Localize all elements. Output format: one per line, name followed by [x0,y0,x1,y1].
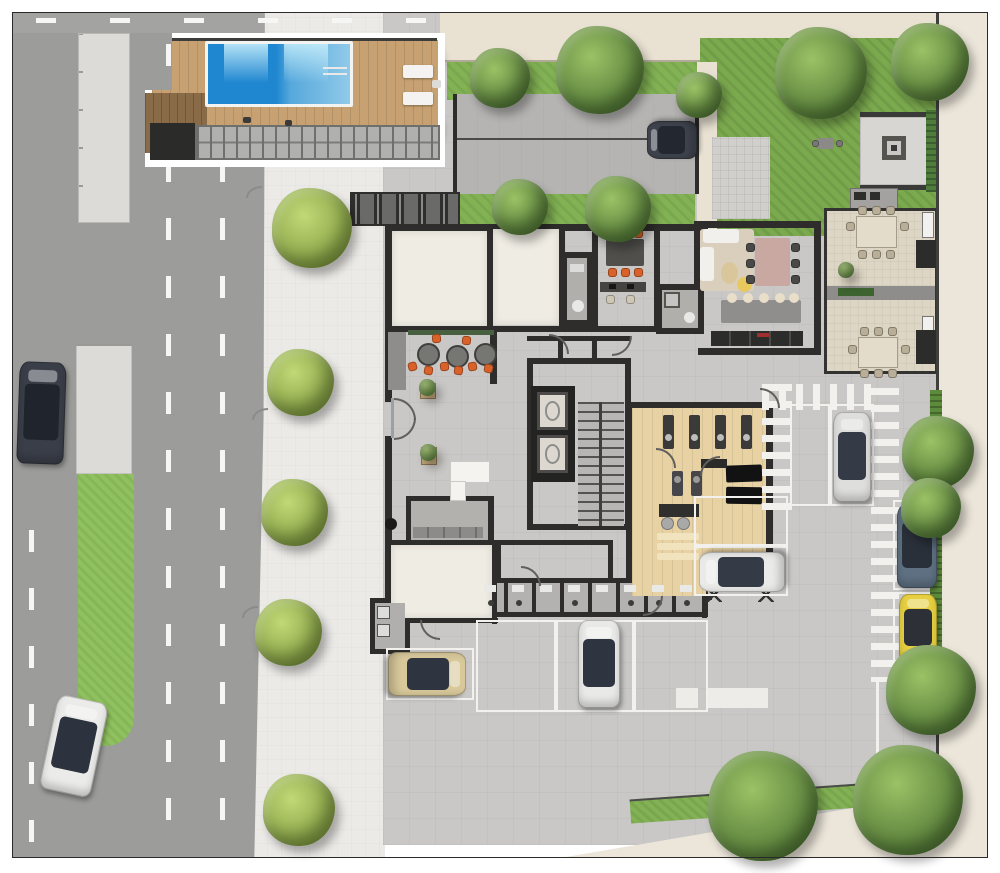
patio-chair [888,369,897,378]
rooftop-pool-inset [145,33,445,167]
room-floor-cream [392,231,487,326]
treadmill [663,415,674,449]
lounge-sofa [700,247,714,281]
wc2-wall [656,328,704,334]
bar-stool [759,293,769,303]
roof-access-block [150,123,195,160]
lawn-tree [492,179,548,235]
painted-patch [708,688,768,708]
meeting-chair [608,268,617,277]
wc-sink [624,585,636,592]
courtyard-gate-cable [457,138,647,140]
gym-bench [726,464,763,482]
office-chair [606,295,615,304]
office-chair [626,295,635,304]
elevator-car [537,435,568,473]
potted-plant [420,444,437,461]
street-tree [267,349,334,416]
bike-user [693,476,700,483]
pool-ladder [323,67,347,79]
wc-sink [568,585,580,592]
street-tree [272,188,352,268]
sun-lounger [403,92,433,105]
treadmill-user [743,434,750,441]
side-table [432,80,441,88]
exercise-ball [661,517,674,530]
wall-lounge-right [814,221,821,355]
wc-sink [680,585,692,592]
office-desk [600,282,646,292]
cowork-chair [423,365,433,375]
room-floor-cream [391,545,492,618]
lawn-tree [585,176,651,242]
car-courtyard-dark [647,121,697,159]
lawn-tree [886,645,976,735]
elevator-car [537,392,568,430]
reception-desk-return [450,481,466,501]
pergola-loungers [195,125,440,160]
kitchen-wall [488,496,494,545]
kitchenette-red-item [757,333,769,337]
car-road-dark [16,361,67,465]
patio-chair [846,222,855,231]
cowork-chair [440,362,450,372]
treadmill [689,415,700,449]
cowork-chair [432,334,442,344]
wall-lounge-bottom [698,348,820,355]
patio-chair [900,222,909,231]
corridor-wall [496,540,612,545]
bbq-burner [854,192,866,200]
storage-washer [377,606,390,619]
wc-partition [532,583,536,613]
grass-strip-mid [455,194,695,226]
car-silver [833,412,871,502]
painted-patch [676,688,698,708]
lounge-dining-table [755,238,790,286]
treadmill-user [665,434,672,441]
wc-sink [652,585,664,592]
street-tree [261,479,328,546]
patio-chair [848,345,857,354]
core-wall-top [527,358,631,364]
car-tan [388,652,466,696]
wc-sink [484,585,496,592]
gym-mat [657,553,699,560]
wc-sink [512,585,524,592]
courtyard-wall [453,94,457,194]
corridor-wall [608,540,613,582]
bike-user [674,476,681,483]
lounge-bar [721,300,801,323]
corridor-wall [496,540,501,582]
firepit-center [891,145,897,151]
wc1-sink [570,264,584,272]
lounge-dining-chair [746,275,755,284]
site-plan-stage [0,0,1000,873]
storage-washer [377,624,390,637]
parking-spot [790,404,830,506]
monitor [609,284,616,289]
cowork-table [474,343,497,366]
cowork-table [417,343,440,366]
patio-chair [872,250,881,259]
cowork-cabinet [388,332,406,390]
patio-chair [872,206,881,215]
patio-chair [860,369,869,378]
exercise-ball [677,517,690,530]
wc1-toilet [572,300,584,312]
patio-chair [888,327,897,336]
median-island-paved-top [78,33,130,223]
floor-drain [385,518,397,530]
wc1-wall [561,320,593,326]
wc-sink [540,585,552,592]
wc-partition [616,583,620,613]
patio-chair [874,369,883,378]
wc-partition [560,583,564,613]
lawn-tree [853,745,963,855]
lounge-sofa [703,229,739,243]
patio-chair [874,327,883,336]
stair-rail [599,402,602,526]
bike-racks [350,192,460,226]
wc2-toilet [684,312,695,323]
bar-stool [743,293,753,303]
sun-lounger [403,65,433,78]
lawn-tree [901,478,961,538]
potted-plant [419,379,436,396]
cowork-chair [467,361,477,371]
kitchen-counter [413,527,483,538]
cowork-table [446,345,469,368]
divider-planter [838,288,874,296]
lounge-dining-chair [746,259,755,268]
treadmill [715,415,726,449]
deck-table [243,117,251,123]
lane-dash-row [36,18,436,23]
lawn-tree [470,48,530,108]
core-rooms-partition [592,336,597,360]
wc-toilet-dot [572,600,578,606]
wc-partition [504,583,508,613]
potted-plant [838,262,854,278]
room-floor-cream [493,229,559,325]
lawn-tree [556,26,644,114]
pavilion-side-table [818,138,834,149]
patio-chair [886,206,895,215]
wall-meeting-bottom [560,326,660,332]
treadmill-user [691,434,698,441]
patio-grill-unit [916,240,936,268]
lawn-tree [891,23,969,101]
lounge-dining-chair [746,243,755,252]
treadmill-user [717,434,724,441]
patio-chair [860,327,869,336]
patio-chair [858,206,867,215]
cowork-chair [462,336,472,346]
reception-desk [450,461,490,483]
wc-toilet-dot [488,600,494,606]
lounge-coffee-table [721,262,738,284]
lawn-tree [902,416,974,488]
bar-stool [789,293,799,303]
patio-appliance [922,212,934,238]
lounge-dining-chair [791,243,800,252]
patio-chair [858,250,867,259]
median-island-paved-mid [76,344,132,474]
wc-toilet-dot [628,600,634,606]
patio-table [856,216,897,248]
patio-table [858,337,898,368]
bbq-burner [870,192,880,200]
deck-table [285,120,292,126]
wc-sink [596,585,608,592]
street-tree [255,599,322,666]
cowork-counter [408,330,494,335]
monitor [627,284,634,289]
wc2-shower [664,292,680,308]
cowork-chair [453,365,463,375]
lounge-dining-chair [791,259,800,268]
bar-stool [727,293,737,303]
wc-partition [588,583,592,613]
meeting-chair [634,268,643,277]
pavilion-side-chair [836,140,843,147]
lane-dash-column [29,530,34,846]
patio-grill-unit [916,330,936,364]
car-white-gym [699,552,785,592]
gym-mat [657,533,699,540]
meeting-chair [621,268,630,277]
street-tree [263,774,335,846]
parking-spot [476,620,556,712]
patio-chair [901,345,910,354]
gym-counter [659,504,699,517]
bar-stool [775,293,785,303]
pavilion-side-chair [812,140,819,147]
patio-chair [886,250,895,259]
meeting-table [606,239,644,266]
lawn-tree [775,27,867,119]
car-white-lot [578,620,620,708]
lounge-dining-chair [791,275,800,284]
wc1-wall [587,252,593,326]
crosswalk-vertical [871,388,899,682]
wc-toilet-dot [684,600,690,606]
patio-paved-top [712,137,770,219]
gym-mat [657,543,699,550]
wc-toilet-dot [516,600,522,606]
lawn-tree [676,72,722,118]
wall-top-b [698,221,820,228]
treadmill [741,415,752,449]
exercise-bike [672,471,683,496]
lawn-tree [708,751,818,861]
